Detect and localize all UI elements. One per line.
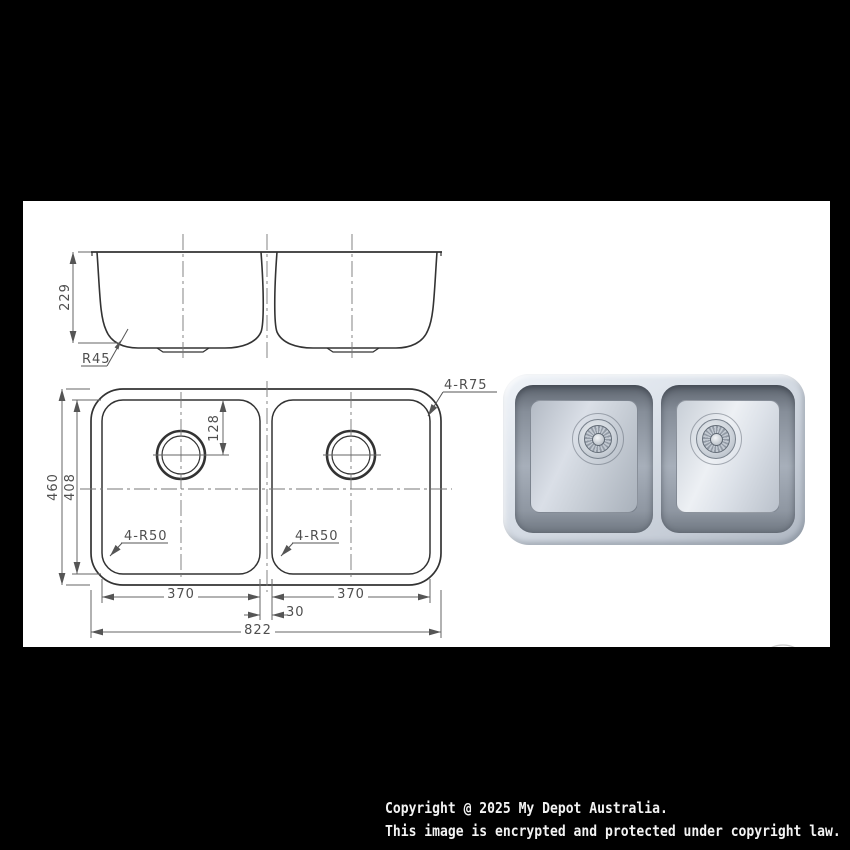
dim-text-460: 460: [46, 473, 61, 501]
leader-lines: [81, 329, 497, 556]
left-drain-button-icon: [592, 433, 605, 446]
right-drain-strainer-icon: [702, 425, 730, 453]
render-right-bowl: [661, 385, 795, 533]
radius-label-4r75: 4-R75: [444, 378, 488, 393]
dim-text-408: 408: [63, 473, 78, 501]
copyright-line-1: Copyright @ 2025 My Depot Australia.: [385, 799, 668, 817]
dim-text-822: 822: [244, 623, 272, 638]
elevation-left-bowl-profile: [97, 252, 263, 348]
left-drain-icon: [578, 419, 618, 459]
dim-text-229: 229: [58, 283, 73, 311]
extension-lines: [66, 252, 441, 638]
leader-4r50-left: [110, 543, 122, 556]
dim-text-30: 30: [286, 605, 305, 620]
elevation-right-bowl-profile: [275, 252, 437, 348]
radius-label-4r50-right: 4-R50: [295, 529, 339, 544]
dim-text-128: 128: [207, 414, 222, 442]
plan-outer-rect: [91, 389, 441, 585]
right-drain-icon: [696, 419, 736, 459]
leader-4r50-right: [281, 543, 293, 556]
copyright-line-2: This image is encrypted and protected un…: [385, 822, 841, 840]
watermark-circle: [756, 645, 810, 699]
radius-label-r45: R45: [82, 352, 111, 367]
radius-label-4r50-left: 4-R50: [124, 529, 168, 544]
elevation-view: [91, 252, 442, 352]
page: { "window": { "background": "#000000" },…: [0, 0, 850, 850]
dim-text-370-left: 370: [167, 587, 195, 602]
dimension-lines: [62, 252, 441, 632]
right-drain-button-icon: [710, 433, 723, 446]
plan-view: [91, 389, 441, 585]
render-left-bowl: [515, 385, 653, 533]
dim-text-370-right: 370: [337, 587, 365, 602]
left-drain-strainer-icon: [584, 425, 612, 453]
sink-3d-render: [503, 374, 805, 545]
